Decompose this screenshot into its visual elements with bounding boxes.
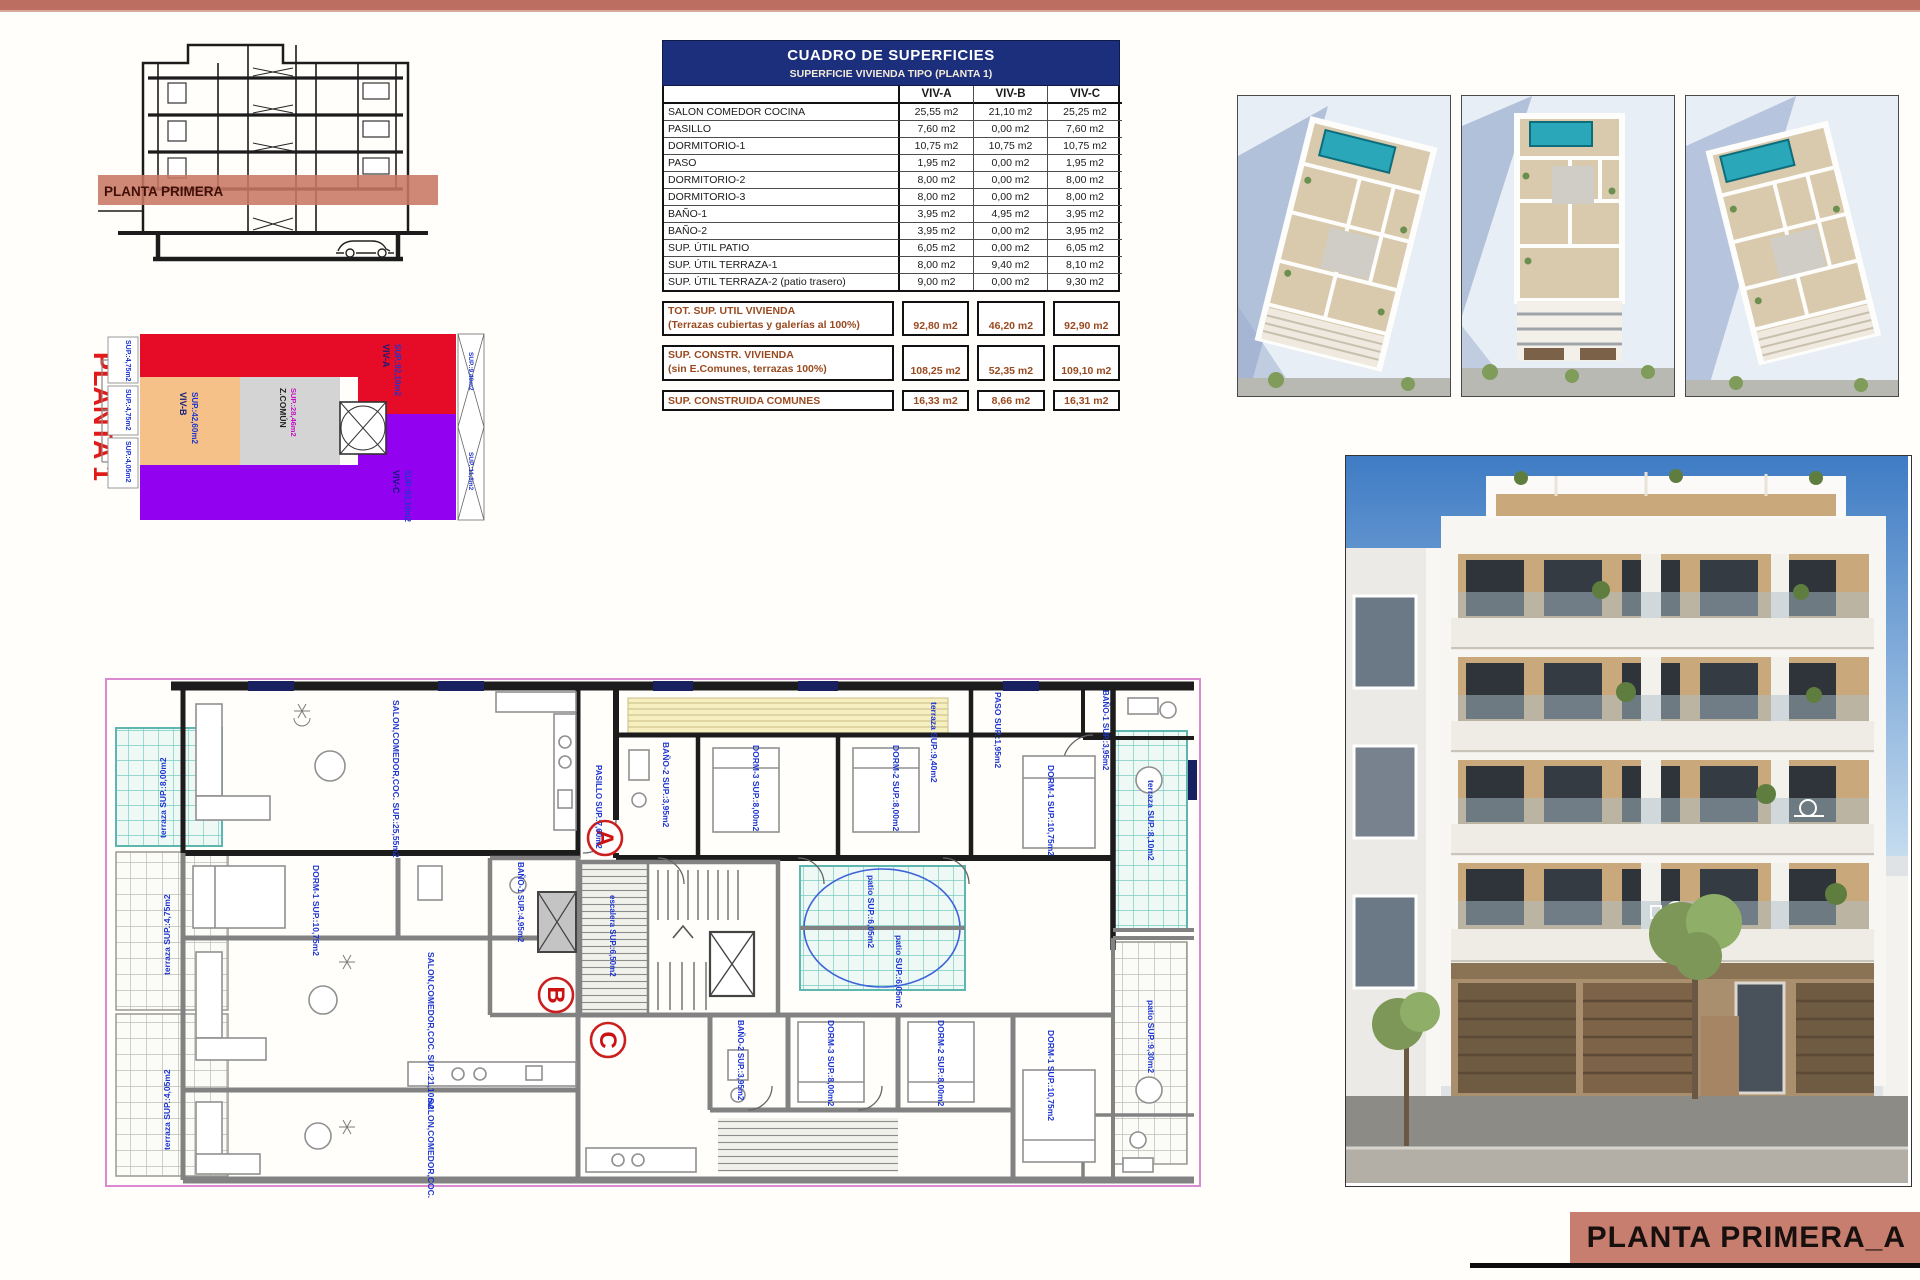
section-car — [336, 241, 394, 257]
floor-band-4 — [1451, 554, 1874, 650]
floor-plan: A B C SALON,COMEDOR,COC. SUP.:25,55m2 te… — [98, 670, 1238, 1203]
summary-value: 8,66 m2 — [977, 390, 1044, 412]
surface-table-title: CUADRO DE SUPERFICIES — [663, 47, 1119, 64]
room-label: terraza SUP.:9,40m2 — [929, 702, 939, 783]
section-band-label: PLANTA PRIMERA — [104, 184, 223, 199]
title-block: PLANTA PRIMERA_A — [1570, 1212, 1920, 1264]
room-label: patio SUP.:9,30m2 — [1146, 1000, 1156, 1073]
surface-table-subtitle: SUPERFICIE VIVIENDA TIPO (PLANTA 1) — [663, 68, 1119, 80]
row-value: 6,05 m2 — [900, 240, 974, 257]
room-label: DORM-3 SUP.:8,00m2 — [751, 745, 761, 832]
key-plan-viv-a-area: SUP.:92,10m2 — [393, 344, 402, 396]
row-label: SUP. ÚTIL TERRAZA-1 — [664, 257, 900, 274]
row-value: 7,60 m2 — [1048, 121, 1122, 138]
row-label: DORMITORIO-2 — [664, 172, 900, 189]
col-header-viv-b: VIV-B — [974, 86, 1048, 104]
row-label: PASILLO — [664, 121, 900, 138]
summary-row-constr: SUP. CONSTR. VIVIENDA (sin E.Comunes, te… — [662, 345, 1120, 380]
room-label: SALON,COMEDOR,COC. SUP.:21,10m2 — [426, 952, 436, 1110]
summary-value: 92,80 m2 — [902, 301, 969, 336]
room-label: BAÑO-2 SUP.:3,95m2 — [661, 742, 671, 828]
room-label: DORM-2 SUP.:8,00m2 — [891, 745, 901, 832]
summary-label: SUP. CONSTRUIDA COMUNES — [662, 390, 894, 412]
row-value: 0,00 m2 — [974, 274, 1048, 290]
room-label: DORM-1 SUP.:10,75m2 — [1046, 1030, 1056, 1121]
row-value: 9,40 m2 — [974, 257, 1048, 274]
row-value: 0,00 m2 — [974, 189, 1048, 206]
key-plan-stair-box — [340, 402, 386, 454]
summary-value: 108,25 m2 — [902, 345, 969, 380]
key-plan-right-strip: SUP.:9,40m2 SUP.:11,8m2 — [458, 334, 484, 520]
key-plan-viv-b-name: VIV-B — [178, 392, 188, 416]
row-value: 9,30 m2 — [1048, 274, 1122, 290]
aerial-render-1 — [1237, 95, 1451, 397]
top-accent-bar — [0, 0, 1920, 12]
row-value: 0,00 m2 — [974, 172, 1048, 189]
key-plan-right-label: SUP.:11,8m2 — [467, 452, 474, 491]
surface-table-grid: VIV-A VIV-B VIV-C SALON COMEDOR COCINA 2… — [662, 86, 1120, 292]
aerial-renders — [1237, 95, 1899, 397]
room-label: BAÑO-1 SUP.:3,95m2 — [1101, 690, 1110, 771]
room-label: escalera SUP.:6,50m2 — [608, 895, 617, 977]
plan-room-labels: SALON,COMEDOR,COC. SUP.:25,55m2 terraza … — [158, 690, 1156, 1198]
main-building — [1441, 469, 1886, 1096]
summary-value: 52,35 m2 — [977, 345, 1044, 380]
row-value: 3,95 m2 — [1048, 223, 1122, 240]
col-header-empty — [664, 86, 900, 104]
summary-label-main: SUP. CONSTR. VIVIENDA — [668, 349, 794, 361]
room-label: BAÑO-2 SUP.:3,95m2 — [736, 1020, 745, 1101]
plan-sheet: PLANTA PRIMERA PLANTA 1 SUP.:4,75m2 SUP.… — [0, 0, 1920, 1280]
building-section-drawing: PLANTA PRIMERA — [98, 33, 443, 286]
col-header-viv-c: VIV-C — [1048, 86, 1122, 104]
row-value: 6,05 m2 — [1048, 240, 1122, 257]
floor-band-2 — [1451, 760, 1874, 856]
room-label: terraza SUP.:4,05m2 — [162, 1069, 172, 1150]
row-value: 8,00 m2 — [900, 257, 974, 274]
summary-label-sub: (sin E.Comunes, terrazas 100%) — [668, 363, 888, 377]
col-header-viv-a: VIV-A — [900, 86, 974, 104]
key-plan-viv-a-name: VIV-A — [381, 344, 391, 368]
summary-value: 109,10 m2 — [1053, 345, 1120, 380]
key-plan-viv-b-area: SUP.:42,60m2 — [190, 392, 199, 444]
floor-band-3 — [1451, 657, 1874, 753]
section-stair-hatch — [253, 68, 293, 230]
row-value: 10,75 m2 — [900, 138, 974, 155]
summary-row-comunes: SUP. CONSTRUIDA COMUNES 16,33 m2 8,66 m2… — [662, 390, 1120, 412]
section-windows — [168, 83, 389, 178]
unit-marker-b: B — [542, 986, 569, 1003]
key-plan-viv-c-area: SUP.:93,10m2 — [403, 470, 412, 522]
row-value: 8,00 m2 — [900, 189, 974, 206]
row-value: 3,95 m2 — [1048, 206, 1122, 223]
row-value: 1,95 m2 — [1048, 155, 1122, 172]
sheet-title: PLANTA PRIMERA_A — [1587, 1221, 1906, 1255]
summary-value: 16,31 m2 — [1053, 390, 1120, 412]
summary-label: TOT. SUP. UTIL VIVIENDA (Terrazas cubier… — [662, 301, 894, 336]
row-value: 0,00 m2 — [974, 121, 1048, 138]
facade-render — [1345, 455, 1912, 1187]
aerial-render-3 — [1685, 95, 1899, 397]
room-label: terraza SUP.:8,10m2 — [1146, 780, 1156, 861]
row-label: DORMITORIO-1 — [664, 138, 900, 155]
room-label: DORM-2 SUP.:8,00m2 — [936, 1020, 946, 1107]
room-label: DORM-3 SUP.:8,00m2 — [826, 1020, 836, 1107]
room-label: SALON,COMEDOR,COC. SUP.:25,55m2 — [391, 700, 401, 858]
row-label: SUP. ÚTIL TERRAZA-2 (patio trasero) — [664, 274, 900, 290]
row-value: 8,00 m2 — [900, 172, 974, 189]
room-label: DORM-1 SUP.:10,75m2 — [1046, 765, 1056, 856]
room-label: BAÑO-1 SUP.:4,95m2 — [516, 862, 525, 943]
summary-label-main: SUP. CONSTRUIDA COMUNES — [668, 395, 820, 407]
summary-row-total-util: TOT. SUP. UTIL VIVIENDA (Terrazas cubier… — [662, 301, 1120, 336]
key-plan-left-label: SUP.:4,75m2 — [124, 389, 131, 431]
key-plan-left-label: SUP.:4,75m2 — [124, 340, 131, 382]
key-plan-comun-name: Z.COMÚN — [278, 388, 289, 428]
title-underline — [1470, 1263, 1920, 1268]
row-value: 21,10 m2 — [974, 104, 1048, 121]
room-label: SALON,COMEDOR,COC. SUP.:25,25m2 — [426, 1098, 436, 1198]
key-plan: PLANTA 1 SUP.:4,75m2 SUP.:4,75m2 SUP.:4,… — [58, 322, 493, 542]
room-label: terraza SUP.:4,75m2 — [162, 894, 172, 975]
row-value: 7,60 m2 — [900, 121, 974, 138]
summary-value: 92,90 m2 — [1053, 301, 1120, 336]
row-value: 0,00 m2 — [974, 240, 1048, 257]
room-label: terraza SUP.:8,00m2 — [158, 757, 168, 838]
row-value: 10,75 m2 — [1048, 138, 1122, 155]
row-label: SALON COMEDOR COCINA — [664, 104, 900, 121]
row-value: 25,55 m2 — [900, 104, 974, 121]
row-value: 0,00 m2 — [974, 155, 1048, 172]
neighbor-building-right — [1883, 876, 1908, 1096]
row-label: PASO — [664, 155, 900, 172]
room-label: patio SUP.:6,05m2 — [866, 875, 876, 948]
row-value: 4,95 m2 — [974, 206, 1048, 223]
key-plan-right-label: SUP.:9,40m2 — [467, 352, 474, 391]
room-label: PASO SUP.:1,95m2 — [993, 692, 1003, 768]
row-value: 8,00 m2 — [1048, 189, 1122, 206]
row-label: BAÑO-2 — [664, 223, 900, 240]
plan-furniture — [193, 692, 1176, 1174]
room-label: patio SUP.:6,05m2 — [894, 935, 904, 1008]
summary-label: SUP. CONSTR. VIVIENDA (sin E.Comunes, te… — [662, 345, 894, 380]
summary-value: 46,20 m2 — [977, 301, 1044, 336]
row-value: 3,95 m2 — [900, 206, 974, 223]
row-value: 25,25 m2 — [1048, 104, 1122, 121]
aerial-building — [1517, 116, 1622, 361]
summary-label-sub: (Terrazas cubiertas y galerías al 100%) — [668, 319, 888, 333]
key-plan-viv-c-name: VIV-C — [391, 470, 401, 494]
room-label: DORM-1 SUP.:10,75m2 — [311, 865, 321, 956]
key-plan-zone-viv-b — [140, 377, 240, 465]
row-label: BAÑO-1 — [664, 206, 900, 223]
summary-label-main: TOT. SUP. UTIL VIVIENDA — [668, 305, 795, 317]
row-value: 0,00 m2 — [974, 223, 1048, 240]
unit-marker-c: C — [594, 1031, 621, 1048]
room-label: PASILLO SUP.:7,60m2 — [594, 765, 603, 849]
row-value: 1,95 m2 — [900, 155, 974, 172]
key-plan-comun-area: SUP.:28,46m2 — [289, 388, 298, 437]
key-plan-left-label: SUP.:4,05m2 — [124, 441, 131, 483]
summary-value: 16,33 m2 — [902, 390, 969, 412]
row-value: 3,95 m2 — [900, 223, 974, 240]
ground-floor — [1451, 963, 1874, 1096]
aerial-render-2 — [1461, 95, 1675, 397]
row-value: 9,00 m2 — [900, 274, 974, 290]
surface-table-header: CUADRO DE SUPERFICIES SUPERFICIE VIVIEND… — [662, 40, 1120, 86]
row-value: 10,75 m2 — [974, 138, 1048, 155]
surface-table: CUADRO DE SUPERFICIES SUPERFICIE VIVIEND… — [662, 40, 1120, 411]
row-value: 8,10 m2 — [1048, 257, 1122, 274]
row-label: DORMITORIO-3 — [664, 189, 900, 206]
row-label: SUP. ÚTIL PATIO — [664, 240, 900, 257]
row-value: 8,00 m2 — [1048, 172, 1122, 189]
